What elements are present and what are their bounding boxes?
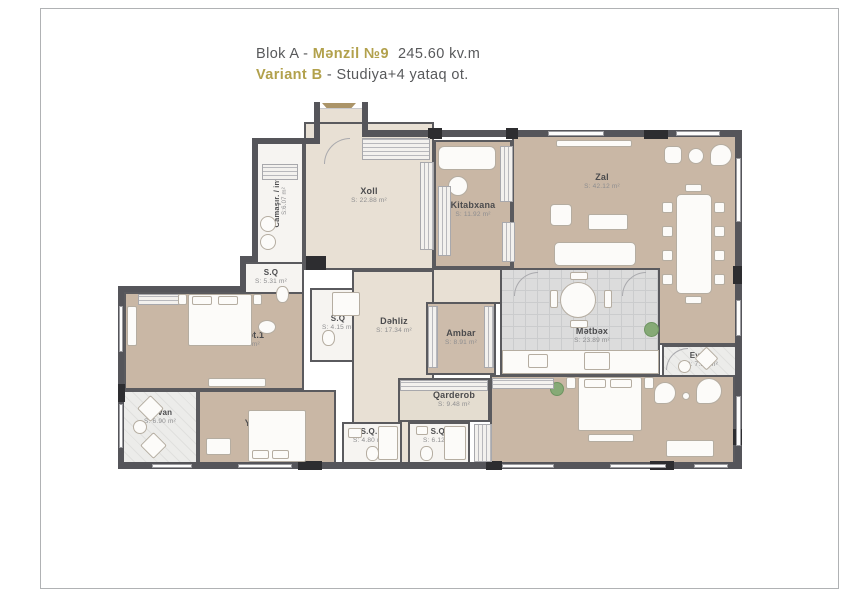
title-unit-number: Mənzil №9 xyxy=(313,46,389,62)
wall-segment xyxy=(252,138,320,144)
kitchen-chair xyxy=(550,290,558,308)
window xyxy=(238,464,292,468)
sofa xyxy=(438,146,496,170)
window xyxy=(119,404,123,448)
nightstand xyxy=(566,377,576,389)
wall-segment xyxy=(118,286,246,292)
armchair xyxy=(710,144,732,166)
nightstand xyxy=(178,294,187,305)
balcony-table xyxy=(133,420,147,434)
pillow xyxy=(272,450,289,459)
bookshelf xyxy=(502,222,515,262)
armchair xyxy=(696,378,722,404)
wardrobe xyxy=(362,138,430,160)
column xyxy=(118,384,125,402)
nightstand xyxy=(253,294,262,305)
dresser xyxy=(666,440,714,457)
kitchen-counter xyxy=(502,350,659,374)
dining-chair xyxy=(685,184,702,192)
column xyxy=(428,128,442,139)
sink xyxy=(348,428,362,438)
window xyxy=(119,306,123,352)
shower xyxy=(378,426,398,460)
dining-chair xyxy=(662,250,673,261)
kitchen-chair xyxy=(570,272,588,280)
wardrobe xyxy=(492,378,554,389)
round-table xyxy=(448,176,468,196)
column xyxy=(306,256,326,270)
shower xyxy=(332,292,360,316)
column xyxy=(644,130,668,139)
storage-shelf xyxy=(428,306,438,368)
title-variant-desc: - Studiya+4 yataq ot. xyxy=(322,67,468,83)
toilet xyxy=(420,446,433,461)
toilet xyxy=(276,286,289,303)
shower xyxy=(444,426,466,460)
column xyxy=(506,128,518,139)
dining-chair xyxy=(662,274,673,285)
dresser xyxy=(208,378,266,387)
column xyxy=(298,461,322,470)
wardrobe xyxy=(420,162,434,250)
washing-machine xyxy=(260,216,276,232)
title-line-1: Blok A - Mənzil №9245.60 kv.m xyxy=(256,44,480,65)
floor-plan-page: Blok A - Mənzil №9245.60 kv.m Variant B … xyxy=(0,0,849,600)
tv-unit xyxy=(556,140,632,147)
storage-shelf xyxy=(484,306,494,368)
coffee-table xyxy=(588,214,628,230)
side-table xyxy=(682,392,690,400)
dining-chair xyxy=(714,274,725,285)
window xyxy=(736,396,741,446)
column xyxy=(486,461,502,470)
dining-chair xyxy=(714,202,725,213)
stove xyxy=(584,352,610,370)
wall-segment xyxy=(314,102,320,142)
dining-chair xyxy=(662,226,673,237)
plant-icon xyxy=(644,322,659,337)
kitchen-chair xyxy=(604,290,612,308)
armchair xyxy=(654,382,676,404)
desk xyxy=(127,306,137,346)
side-table xyxy=(688,148,704,164)
sink xyxy=(258,320,276,334)
column xyxy=(733,266,742,284)
window xyxy=(736,300,741,336)
washing-machine xyxy=(260,234,276,250)
window xyxy=(152,464,192,468)
plan-title: Blok A - Mənzil №9245.60 kv.m Variant B … xyxy=(256,44,480,86)
window xyxy=(502,464,554,468)
pillow xyxy=(610,379,632,388)
window xyxy=(694,464,728,468)
dining-chair xyxy=(662,202,673,213)
kitchen-table xyxy=(560,282,596,318)
window xyxy=(548,131,604,136)
sofa xyxy=(554,242,636,266)
armchair xyxy=(550,204,572,226)
sink xyxy=(528,354,548,368)
pillow xyxy=(192,296,212,305)
sink xyxy=(416,426,428,435)
vanity xyxy=(206,438,231,455)
pillow xyxy=(252,450,269,459)
window xyxy=(736,158,741,222)
wall-segment xyxy=(252,138,258,262)
title-variant: Variant B xyxy=(256,67,322,83)
nightstand xyxy=(644,377,654,389)
pillow xyxy=(218,296,238,305)
shelf xyxy=(262,164,298,180)
wardrobe xyxy=(400,380,488,391)
armchair xyxy=(664,146,682,164)
dining-chair xyxy=(714,226,725,237)
bookshelf xyxy=(500,146,513,202)
window xyxy=(676,131,720,136)
bench xyxy=(588,434,634,442)
title-block: Blok A - xyxy=(256,46,313,62)
title-total-area: 245.60 kv.m xyxy=(398,46,480,62)
dining-table xyxy=(676,194,712,294)
kitchen-chair xyxy=(570,320,588,328)
window xyxy=(610,464,666,468)
wardrobe xyxy=(474,424,492,462)
bookshelf xyxy=(438,186,451,256)
toilet xyxy=(322,330,335,346)
title-line-2: Variant B - Studiya+4 yataq ot. xyxy=(256,65,480,86)
dining-chair xyxy=(685,296,702,304)
pillow xyxy=(584,379,606,388)
dining-chair xyxy=(714,250,725,261)
